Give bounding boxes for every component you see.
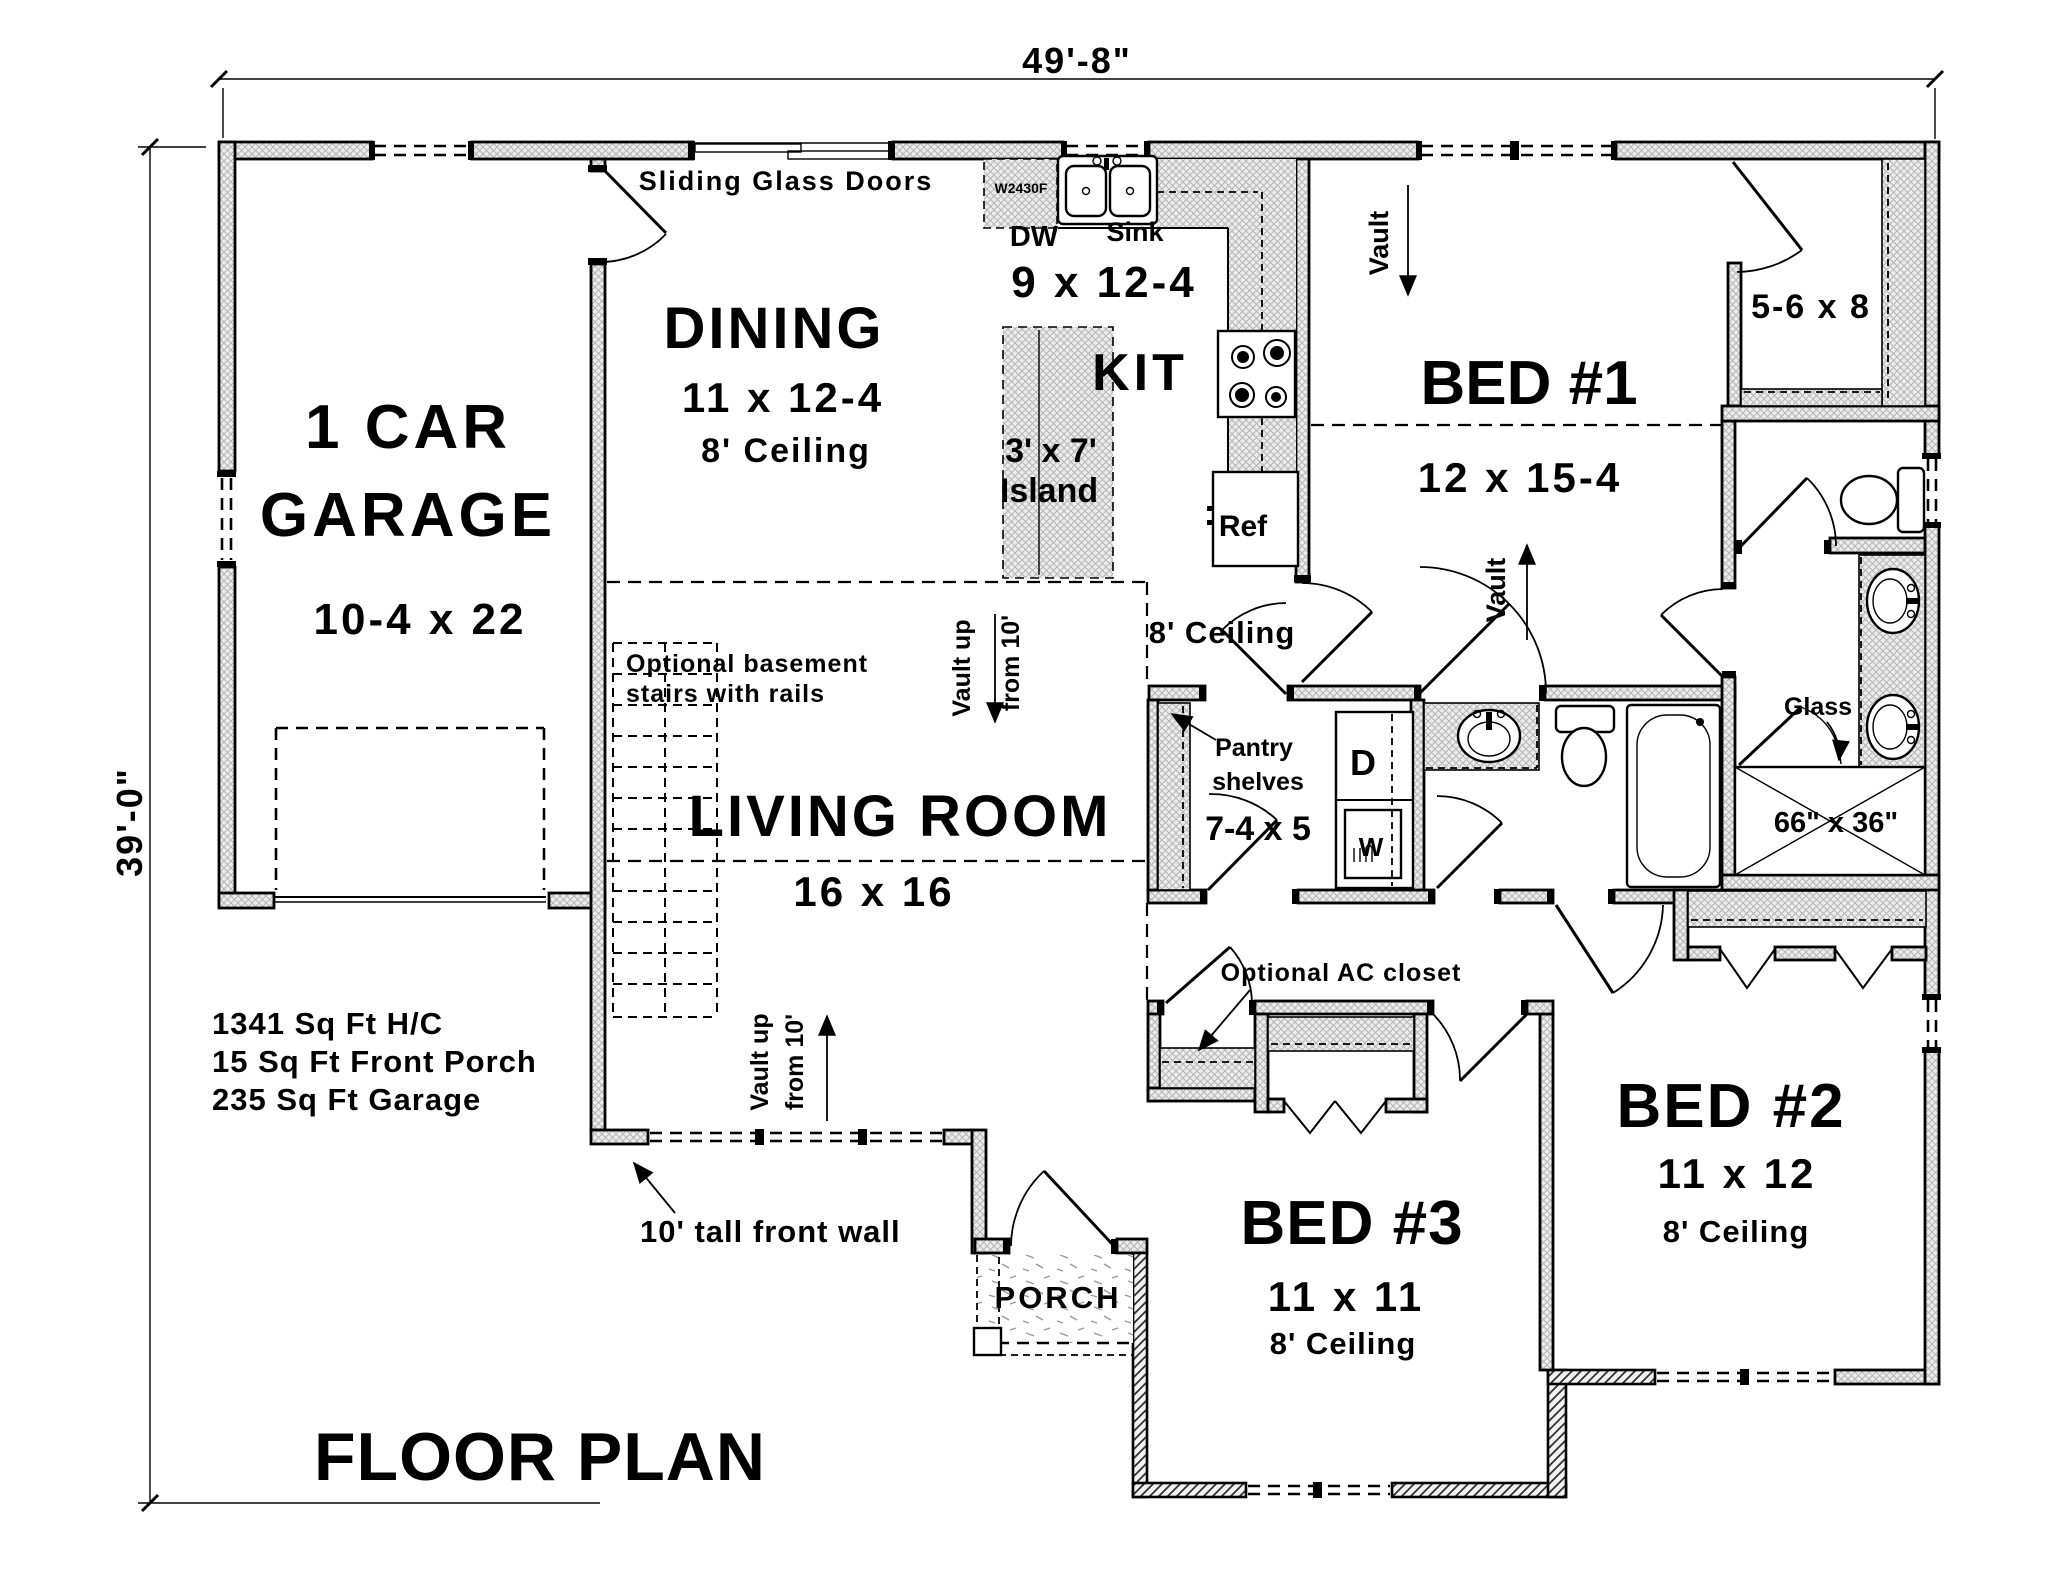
svg-text:8' Ceiling: 8' Ceiling	[701, 432, 871, 470]
svg-text:5-6 x 8: 5-6 x 8	[1751, 288, 1871, 326]
svg-text:3' x 7': 3' x 7'	[1005, 432, 1097, 470]
svg-text:W2430F: W2430F	[995, 180, 1048, 196]
svg-text:W: W	[1359, 832, 1384, 862]
svg-text:shelves: shelves	[1212, 768, 1304, 796]
svg-text:Optional basement: Optional basement	[626, 650, 868, 678]
svg-text:1 CAR: 1 CAR	[305, 393, 511, 462]
svg-text:BED #3: BED #3	[1240, 1189, 1463, 1258]
svg-text:DINING: DINING	[664, 296, 885, 361]
svg-text:from 10': from 10'	[781, 1014, 809, 1110]
svg-text:stairs with rails: stairs with rails	[626, 680, 825, 708]
svg-text:8' Ceiling: 8' Ceiling	[1663, 1214, 1810, 1249]
svg-text:Optional AC closet: Optional AC closet	[1221, 959, 1462, 987]
svg-text:16 x 16: 16 x 16	[793, 868, 954, 915]
svg-text:11 x 12: 11 x 12	[1658, 1150, 1817, 1197]
svg-text:BED #1: BED #1	[1420, 349, 1637, 418]
svg-text:Sink: Sink	[1106, 217, 1164, 247]
svg-text:BED #2: BED #2	[1616, 1072, 1845, 1141]
svg-text:10-4 x 22: 10-4 x 22	[314, 595, 527, 644]
svg-text:Glass: Glass	[1784, 693, 1852, 721]
svg-text:KIT: KIT	[1092, 344, 1188, 402]
svg-text:DW: DW	[1010, 221, 1059, 253]
svg-text:12 x 15-4: 12 x 15-4	[1418, 454, 1622, 501]
svg-text:Ref: Ref	[1219, 510, 1268, 543]
svg-text:LIVING ROOM: LIVING ROOM	[689, 784, 1112, 849]
svg-text:FLOOR PLAN: FLOOR PLAN	[314, 1419, 766, 1495]
svg-text:235 Sq Ft Garage: 235 Sq Ft Garage	[212, 1082, 481, 1117]
svg-text:Vault: Vault	[1364, 211, 1394, 276]
svg-text:Vault up: Vault up	[948, 619, 976, 716]
svg-text:D: D	[1350, 742, 1376, 783]
svg-text:Island: Island	[1000, 472, 1098, 510]
svg-text:10' tall front wall: 10' tall front wall	[640, 1214, 901, 1249]
svg-text:8' Ceiling: 8' Ceiling	[1270, 1326, 1417, 1361]
svg-text:Sliding Glass Doors: Sliding Glass Doors	[639, 166, 934, 196]
svg-text:Vault: Vault	[1481, 558, 1511, 623]
svg-text:11 x 11: 11 x 11	[1268, 1273, 1425, 1320]
svg-text:from 10': from 10'	[997, 615, 1025, 711]
svg-text:PORCH: PORCH	[995, 1280, 1122, 1315]
svg-text:Pantry: Pantry	[1215, 734, 1293, 762]
svg-text:49'-8": 49'-8"	[1022, 40, 1132, 81]
svg-text:66" x 36": 66" x 36"	[1774, 807, 1898, 839]
svg-text:39'-0": 39'-0"	[109, 767, 150, 877]
svg-text:15 Sq Ft Front Porch: 15 Sq Ft Front Porch	[212, 1044, 537, 1079]
svg-text:7-4 x 5: 7-4 x 5	[1205, 810, 1311, 848]
svg-text:GARAGE: GARAGE	[260, 481, 556, 550]
svg-text:1341 Sq Ft H/C: 1341 Sq Ft H/C	[212, 1006, 443, 1041]
svg-text:Vault up: Vault up	[746, 1013, 774, 1110]
svg-text:8' Ceiling: 8' Ceiling	[1149, 615, 1296, 650]
svg-text:11 x 12-4: 11 x 12-4	[682, 374, 884, 421]
svg-text:9 x 12-4: 9 x 12-4	[1011, 258, 1196, 307]
